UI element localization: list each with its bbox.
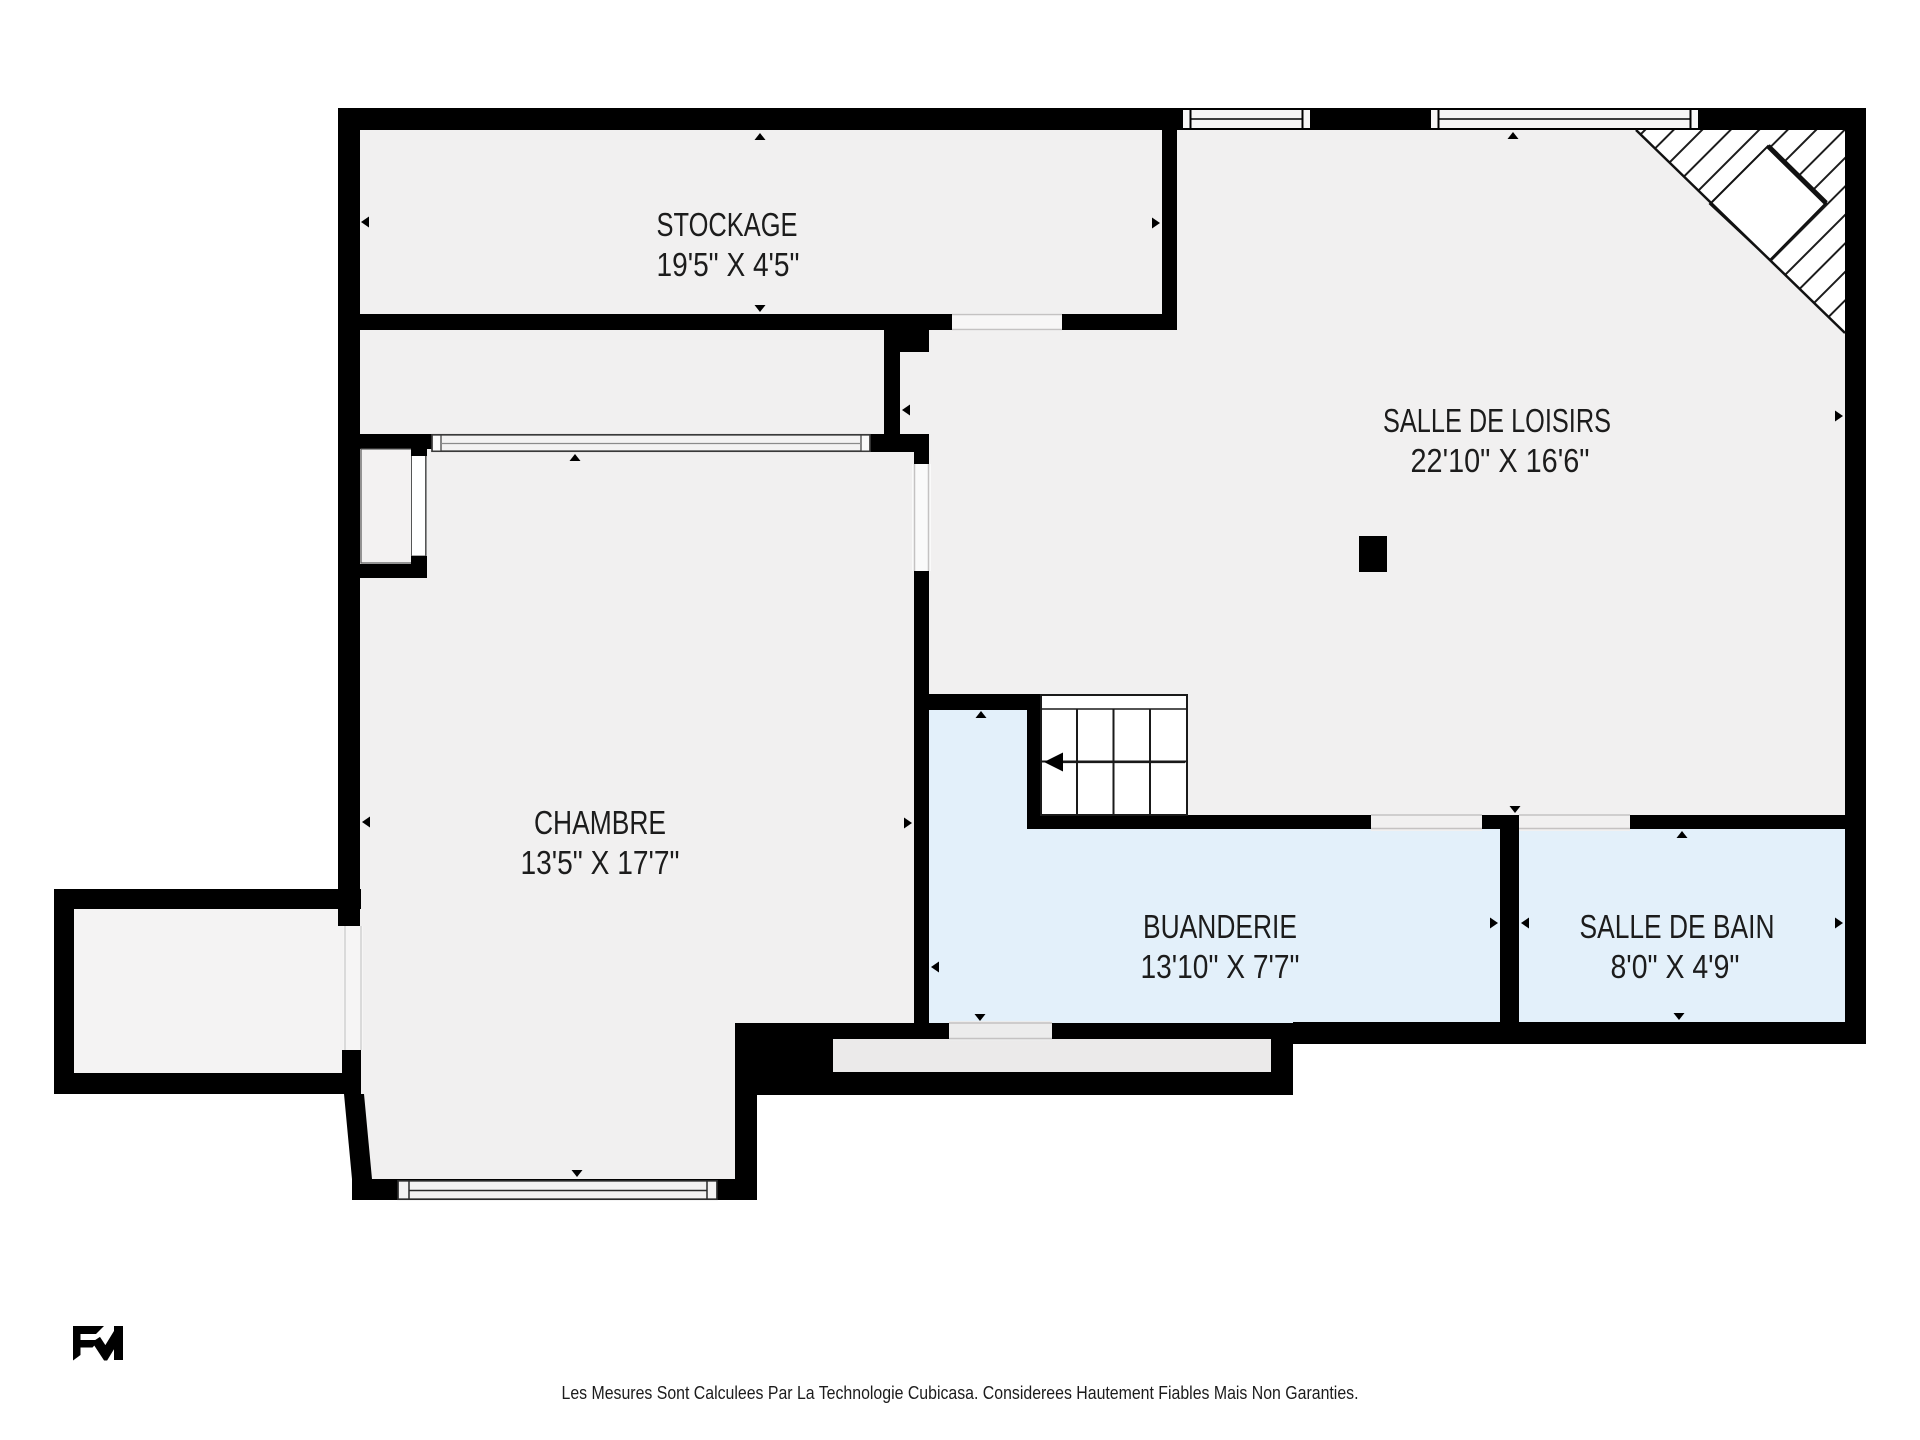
svg-text:SALLE DE LOISIRS: SALLE DE LOISIRS: [1383, 402, 1611, 439]
svg-text:22'10" X 16'6": 22'10" X 16'6": [1411, 442, 1590, 479]
svg-text:13'10" X 7'7": 13'10" X 7'7": [1141, 948, 1300, 985]
svg-text:19'5" X 4'5": 19'5" X 4'5": [657, 246, 800, 283]
svg-text:SALLE DE BAIN: SALLE DE BAIN: [1580, 908, 1775, 945]
svg-text:8'0" X 4'9": 8'0" X 4'9": [1611, 948, 1740, 985]
svg-text:13'5" X 17'7": 13'5" X 17'7": [521, 844, 680, 881]
svg-text:BUANDERIE: BUANDERIE: [1143, 908, 1297, 945]
svg-text:CHAMBRE: CHAMBRE: [534, 804, 666, 841]
svg-text:STOCKAGE: STOCKAGE: [657, 206, 798, 243]
svg-text:Les Mesures Sont Calculees Par: Les Mesures Sont Calculees Par La Techno…: [562, 1382, 1359, 1403]
